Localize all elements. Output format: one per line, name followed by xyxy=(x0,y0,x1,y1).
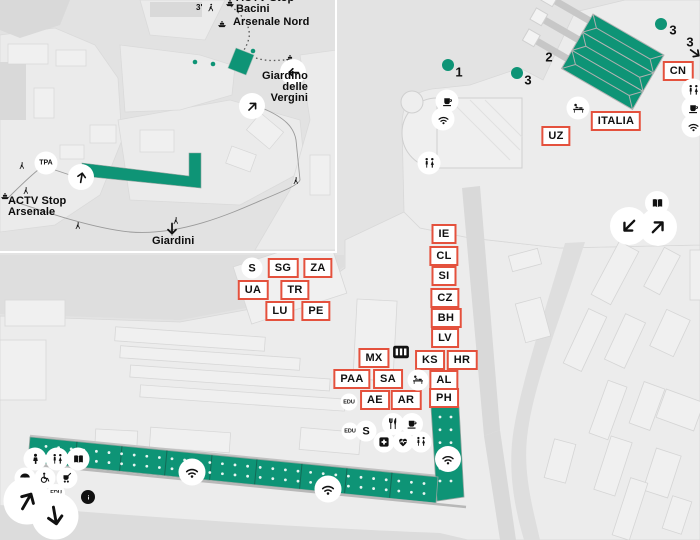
site-dot xyxy=(655,18,667,30)
info-icon xyxy=(81,490,95,504)
site-number: 2 xyxy=(545,50,552,65)
walker-icon xyxy=(18,162,27,171)
toilets-icon xyxy=(411,432,432,453)
pavilion-label-hr[interactable]: HR xyxy=(447,350,478,370)
ferry-icon xyxy=(217,19,228,30)
wifi-icon xyxy=(435,446,461,472)
babychange-icon xyxy=(567,97,590,120)
actv-stop-arsenale-label: ACTV Stop Arsenale xyxy=(8,196,66,218)
pavilion-label-ua[interactable]: UA xyxy=(238,280,269,300)
offmap-arrow-se xyxy=(687,45,700,61)
map-overlay: CNITALIAUZIECLSICZBHLVKSHRALPHSGZAUATRLU… xyxy=(0,0,700,540)
pavilion-label-ie[interactable]: IE xyxy=(432,224,457,244)
route-arrow-up xyxy=(68,164,94,190)
site-dot xyxy=(442,59,454,71)
exit-arrow-ne xyxy=(639,208,677,246)
wifi-icon xyxy=(432,108,455,131)
wifi-icon xyxy=(179,459,206,486)
wifi-icon xyxy=(315,476,342,503)
pavilion-label-tr[interactable]: TR xyxy=(280,280,309,300)
pavilion-label-lu[interactable]: LU xyxy=(265,301,294,321)
pavilion-label-uz[interactable]: UZ xyxy=(541,126,570,146)
pavilion-label-lv[interactable]: LV xyxy=(431,328,459,348)
pavilion-label-si[interactable]: SI xyxy=(432,266,457,286)
pavilion-label-paa[interactable]: PAA xyxy=(333,369,370,389)
wifi-icon xyxy=(682,115,700,138)
entrance-arrow-down xyxy=(32,493,79,540)
pavilion-label-ae[interactable]: AE xyxy=(360,390,390,410)
firstaid-icon xyxy=(374,432,395,453)
pavilion-label-italia[interactable]: ITALIA xyxy=(591,111,641,131)
grid-icon xyxy=(391,342,411,362)
pavilion-label-al[interactable]: AL xyxy=(429,370,458,390)
babychange-icon xyxy=(408,370,429,391)
pavilion-label-pe[interactable]: PE xyxy=(301,301,330,321)
pavilion-label-za[interactable]: ZA xyxy=(303,258,332,278)
badge-tpa: TPA xyxy=(35,152,58,175)
pavilion-label-mx[interactable]: MX xyxy=(358,348,389,368)
giardino-delle-vergini-label: Giardino delle Vergini xyxy=(262,71,308,104)
walker-icon xyxy=(206,3,216,13)
stroller-icon xyxy=(57,468,78,489)
pavilion-label-ks[interactable]: KS xyxy=(415,350,445,370)
pavilion-label-cl[interactable]: CL xyxy=(429,246,458,266)
toilets-icon xyxy=(418,152,441,175)
pavilion-label-cz[interactable]: CZ xyxy=(430,288,459,308)
pavilion-label-ar[interactable]: AR xyxy=(391,390,422,410)
pavilion-label-sa[interactable]: SA xyxy=(373,369,403,389)
arsenale-map: CNITALIAUZIECLSICZBHLVKSHRALPHSGZAUATRLU… xyxy=(0,0,700,540)
site-number: 1 xyxy=(455,65,462,80)
site-number: 3 xyxy=(524,73,531,88)
giardini-label: Giardini xyxy=(152,236,194,247)
badge-s: S xyxy=(242,258,263,279)
pavilion-label-sg[interactable]: SG xyxy=(268,258,299,278)
walk-time-label: 3' xyxy=(196,4,203,12)
walker-icon xyxy=(292,177,301,186)
badge-edu: EDU xyxy=(341,394,358,411)
pavilion-label-ph[interactable]: PH xyxy=(429,388,459,408)
pavilion-label-bh[interactable]: BH xyxy=(431,308,462,328)
site-dot xyxy=(511,67,523,79)
actv-stop-bacini-label: ACTV Stop Bacini xyxy=(236,0,294,15)
walker-icon xyxy=(74,222,83,231)
site-number: 3 xyxy=(669,23,676,38)
arsenale-nord-label: Arsenale Nord xyxy=(233,17,310,28)
ferry-icon xyxy=(225,0,236,9)
